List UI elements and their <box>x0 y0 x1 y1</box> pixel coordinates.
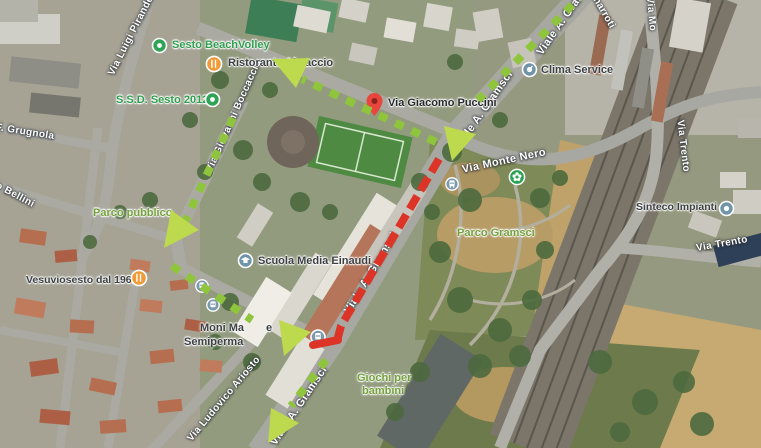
restaurant-poi-marker-ristorante[interactable] <box>205 55 223 73</box>
school-poi-marker-scuola[interactable] <box>237 252 254 269</box>
sport-poi-marker-beachvolley[interactable] <box>151 37 168 54</box>
restaurant-poi-marker-vesuvio[interactable] <box>130 269 148 287</box>
bus-stop-icon[interactable] <box>445 177 459 191</box>
service-poi-marker-sinteco[interactable] <box>718 200 735 217</box>
service-poi-marker-clima[interactable] <box>521 61 538 78</box>
park-label-giochi-line1[interactable]: Giochi per <box>357 372 411 384</box>
poi-label-vesuviosesto[interactable]: Vesuviosesto dal 1961 <box>26 275 137 287</box>
park-label-parco-pubblico[interactable]: Parco pubblico <box>93 207 172 219</box>
park-label-parco-gramsci[interactable]: Parco Gramsci <box>457 227 535 239</box>
bus-stop-icon-route-end[interactable] <box>310 329 326 345</box>
poi-label-scuola-media-einaudi[interactable]: Scuola Media Einaudi <box>258 255 371 267</box>
bus-stop-icon[interactable] <box>195 279 209 293</box>
park-icon[interactable] <box>508 168 526 186</box>
poi-label-via-giacomo-puccini[interactable]: Via Giacomo Puccini <box>388 97 497 109</box>
bus-stop-icon[interactable] <box>206 298 220 312</box>
map-canvas[interactable]: Via Luigi Pirandello F. Grugnola o Belli… <box>0 0 761 448</box>
dropped-pin-icon[interactable] <box>366 93 383 117</box>
poi-label-ssd-sesto-2012[interactable]: S.S.D. Sesto 2012 <box>116 94 208 106</box>
sport-poi-marker-ssd[interactable] <box>204 91 221 108</box>
poi-label-clima-service[interactable]: Clima Service <box>541 64 613 76</box>
poi-label-ristorante-prefix[interactable]: Ristorante Al <box>228 57 296 69</box>
poi-label-sesto-beachvolley[interactable]: Sesto BeachVolley <box>172 39 270 51</box>
poi-label-moni-line1-end[interactable]: e <box>266 322 272 334</box>
poi-label-sinteco-impianti[interactable]: Sinteco Impianti <box>636 202 717 214</box>
poi-label-moni-line2[interactable]: Semiperma <box>184 336 243 348</box>
poi-label-moni-line1[interactable]: Moni Ma <box>200 322 244 334</box>
park-label-giochi-line2[interactable]: bambini <box>362 385 404 397</box>
poi-label-ristorante-suffix[interactable]: accio <box>305 57 333 69</box>
